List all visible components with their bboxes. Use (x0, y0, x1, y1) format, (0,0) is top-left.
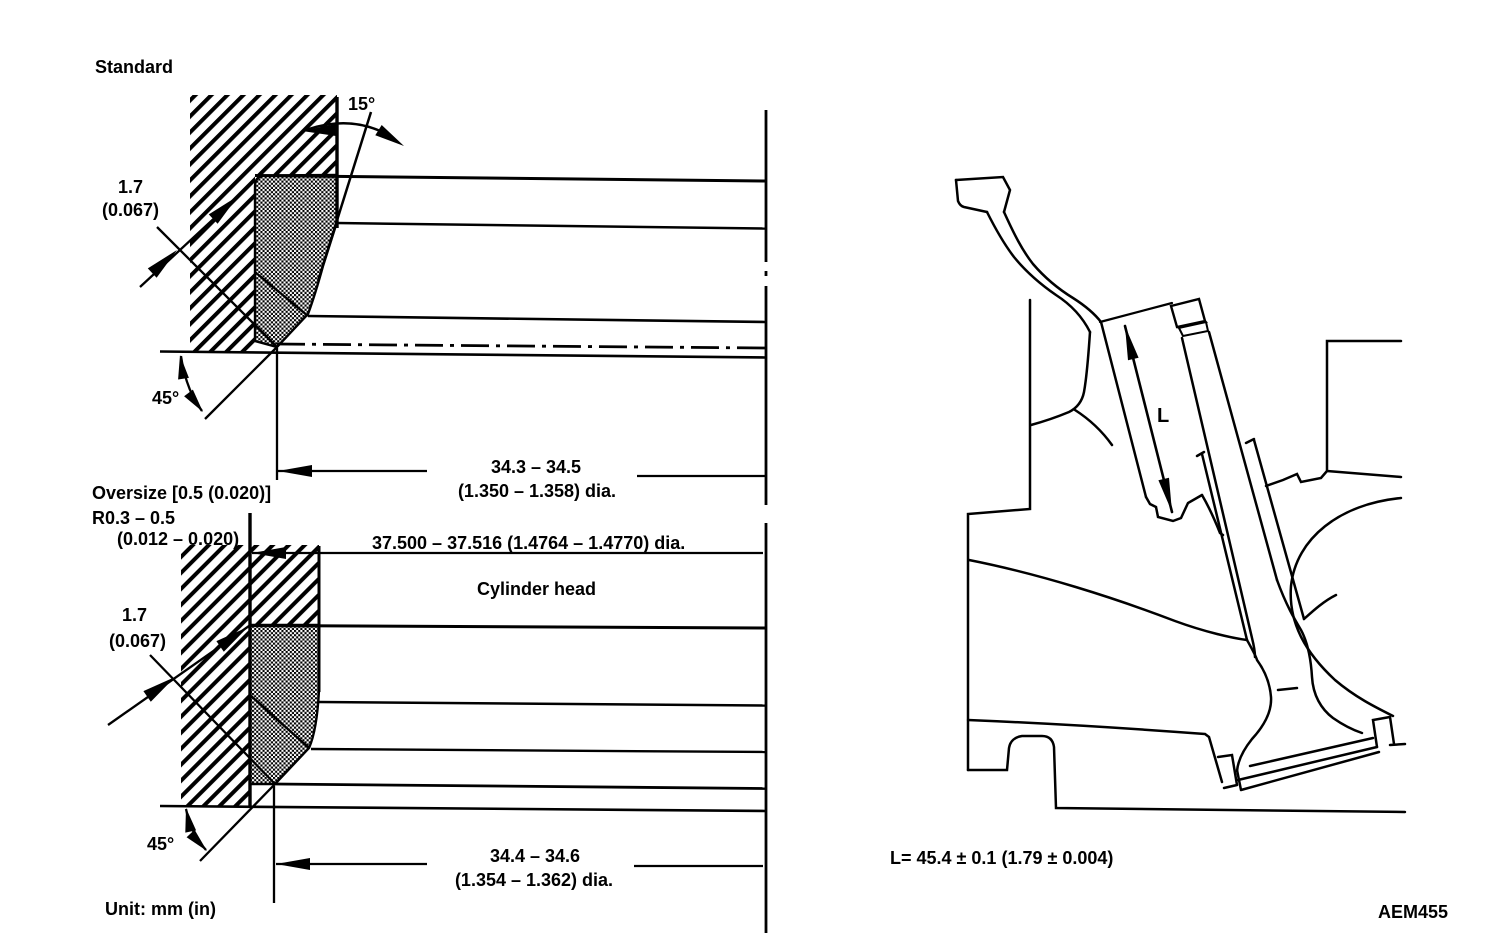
svg-text:AEM455: AEM455 (1378, 902, 1448, 922)
svg-text:34.3 – 34.5: 34.3 – 34.5 (491, 457, 581, 477)
svg-text:(0.012 – 0.020): (0.012 – 0.020) (117, 529, 239, 549)
svg-text:45°: 45° (147, 834, 174, 854)
svg-text:(1.354 – 1.362) dia.: (1.354 – 1.362) dia. (455, 870, 613, 890)
svg-text:(1.350 – 1.358) dia.: (1.350 – 1.358) dia. (458, 481, 616, 501)
svg-text:L: L (1157, 405, 1169, 427)
svg-text:45°: 45° (152, 388, 179, 408)
svg-text:(0.067): (0.067) (102, 200, 159, 220)
svg-text:37.500 – 37.516 (1.4764 – 1.47: 37.500 – 37.516 (1.4764 – 1.4770) dia. (372, 533, 685, 553)
svg-text:Standard: Standard (95, 57, 173, 77)
svg-text:1.7: 1.7 (122, 605, 147, 625)
svg-text:34.4 – 34.6: 34.4 – 34.6 (490, 846, 580, 866)
svg-text:(0.067): (0.067) (109, 631, 166, 651)
svg-text:15°: 15° (348, 94, 375, 114)
svg-text:Oversize [0.5 (0.020)]: Oversize [0.5 (0.020)] (92, 483, 271, 503)
svg-text:Cylinder head: Cylinder head (477, 579, 596, 599)
svg-text:1.7: 1.7 (118, 177, 143, 197)
svg-text:R0.3 – 0.5: R0.3 – 0.5 (92, 508, 175, 528)
svg-text:L= 45.4 ± 0.1 (1.79 ± 0.004): L= 45.4 ± 0.1 (1.79 ± 0.004) (890, 848, 1113, 868)
svg-text:Unit: mm (in): Unit: mm (in) (105, 899, 216, 919)
